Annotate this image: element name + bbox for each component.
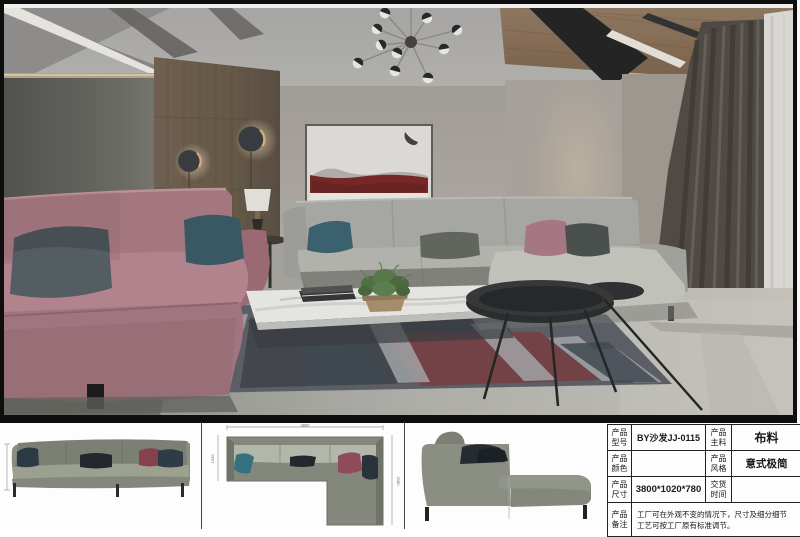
svg-text:3800: 3800	[301, 423, 311, 428]
svg-text:2080: 2080	[396, 477, 401, 487]
svg-text:1020: 1020	[210, 454, 215, 464]
